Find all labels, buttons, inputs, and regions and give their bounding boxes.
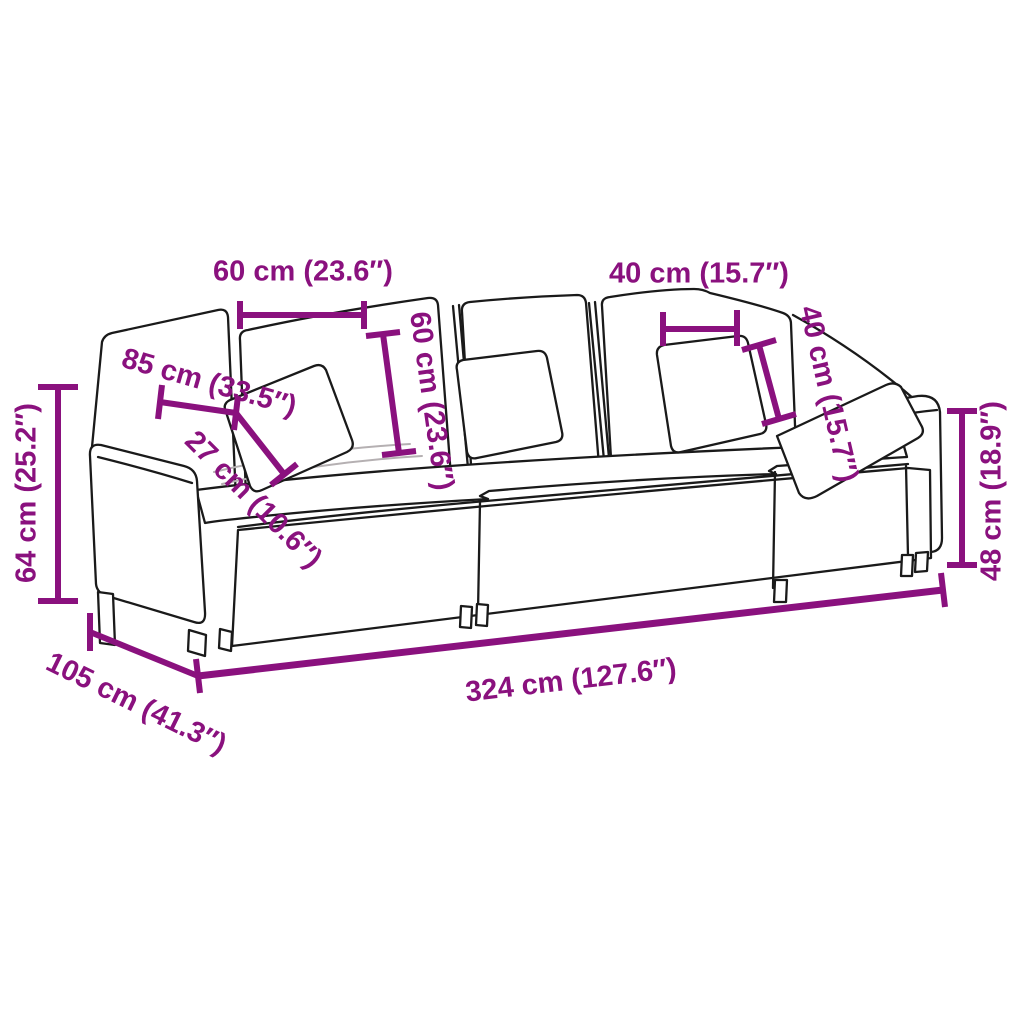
leg — [476, 604, 488, 626]
dim-label-pillow-width: 40 cm (15.7″) — [609, 260, 789, 289]
sofa-line-drawing — [0, 0, 1024, 1024]
leg — [901, 555, 913, 576]
leg — [188, 630, 206, 656]
leg — [774, 580, 787, 602]
leg — [219, 629, 232, 651]
dim-line-total-height — [38, 387, 78, 601]
dim-label-back-cushion-width: 60 cm (23.6″) — [213, 258, 393, 287]
pillow-center — [457, 351, 563, 459]
leg — [460, 606, 472, 628]
pillow-right — [657, 336, 767, 453]
dim-line-armrest-height — [947, 411, 977, 565]
sofa-dimension-diagram: 60 cm (23.6″) 40 cm (15.7″) 60 cm (23.6″… — [0, 0, 1024, 1024]
leg — [915, 552, 928, 572]
dim-label-total-height: 64 cm (25.2″) — [13, 403, 42, 583]
dim-label-armrest-height: 48 cm (18.9″) — [978, 401, 1007, 581]
